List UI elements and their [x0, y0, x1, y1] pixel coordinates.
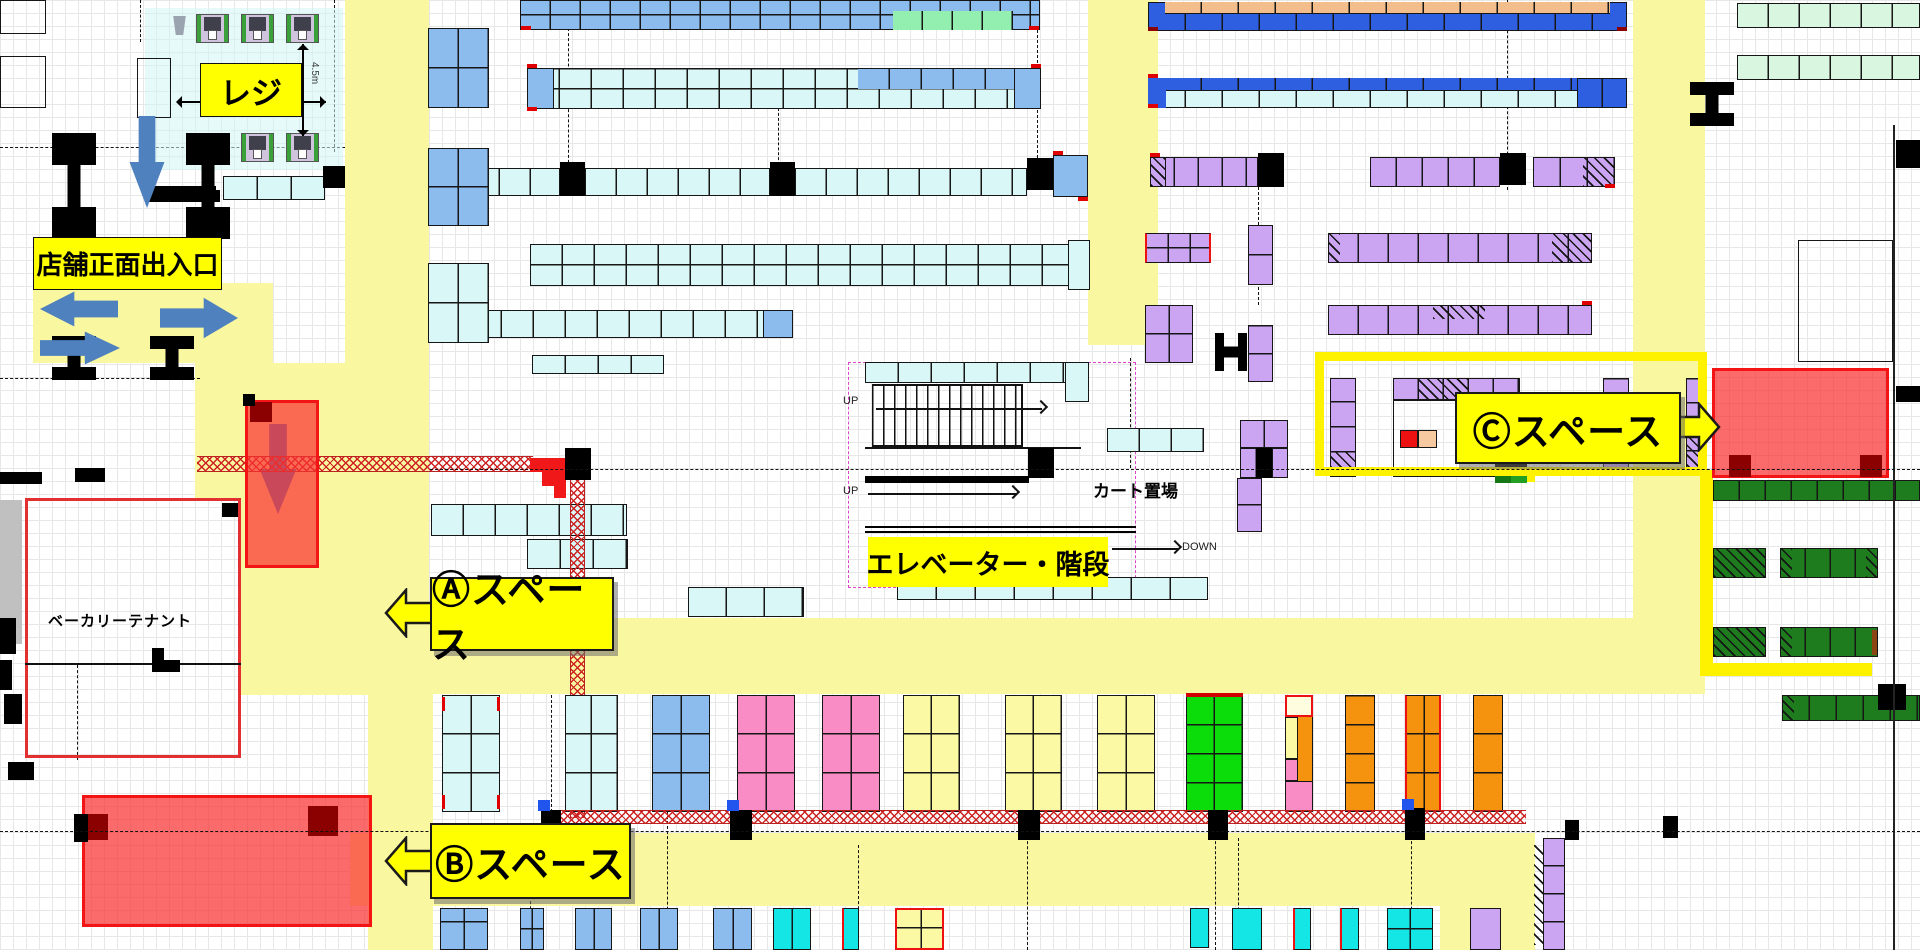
pillar	[1018, 810, 1040, 840]
bottom-block-cyan	[1340, 908, 1359, 950]
pillar	[1565, 820, 1579, 840]
gondola-yellow-3	[1097, 695, 1155, 812]
bottom-block-blue	[520, 908, 544, 950]
pillar	[1500, 153, 1526, 185]
walkway-mid-top	[1088, 0, 1158, 345]
stair-arrow-line	[876, 408, 1042, 410]
shelf-row-5b	[532, 355, 664, 374]
chain-fence-h-long	[558, 810, 1526, 824]
cspace-pillar	[1860, 455, 1882, 477]
shelf-row-3c	[795, 168, 1027, 196]
bottom-block-blue	[640, 908, 678, 950]
pillar	[1878, 684, 1906, 710]
space-c-text: Ⓒスペース	[1473, 401, 1663, 456]
register-icon	[241, 133, 274, 162]
room-outline-1	[0, 0, 46, 34]
yellow-line-horizontal	[1700, 663, 1872, 676]
shelf-purple-vert	[1237, 478, 1262, 532]
gondola-orange-3	[1473, 695, 1503, 812]
pillar	[1028, 448, 1054, 478]
cart-label: カート置場	[1093, 477, 1178, 502]
bottom-block-cyan	[1190, 908, 1209, 948]
hatch-cell	[1780, 627, 1792, 657]
purple-strip-hatch	[1534, 845, 1543, 945]
wall-mark	[0, 618, 16, 654]
down-text: DOWN	[1182, 541, 1217, 553]
dim-arrowhead	[297, 38, 309, 50]
escalator-line	[865, 526, 1136, 528]
pillar-foot	[0, 472, 42, 484]
shelf-row-3b	[585, 168, 770, 196]
pillar-ibeam	[186, 133, 230, 239]
shelf-row-5	[437, 310, 793, 338]
pillar-foot	[75, 468, 105, 482]
red-tick	[1031, 64, 1041, 68]
pillar	[1663, 816, 1678, 838]
room-outline-3	[0, 56, 46, 108]
space-a-text: Ⓐスペース	[432, 559, 612, 669]
shelf-row-2-cap	[1014, 68, 1041, 109]
aspace-red-area	[245, 400, 319, 568]
dimension-text: 4.5m	[309, 62, 320, 84]
entrance-label-text: 店舗正面出入口	[36, 245, 218, 282]
red-steps	[542, 472, 566, 486]
room-outline-right	[1798, 240, 1893, 362]
red-tick	[1150, 153, 1160, 157]
hatch-cell	[1150, 157, 1166, 187]
shelf-row-1-green	[893, 11, 1013, 30]
callout-arrow-left-icon	[384, 836, 432, 886]
gondola-yellow-2	[1005, 695, 1062, 812]
hatch-cell	[1583, 157, 1615, 187]
brown-tick	[1872, 630, 1877, 655]
red-tick	[1078, 197, 1088, 201]
hatch-cell	[1552, 233, 1592, 263]
red-tick	[1605, 184, 1615, 188]
wall-mark	[1896, 386, 1920, 402]
shelf-purple-r1a	[1150, 157, 1258, 187]
gondola-blue	[652, 695, 710, 812]
wall-mark	[8, 762, 34, 780]
pillar	[560, 162, 585, 196]
bakery-label: ベーカリーテナント	[48, 610, 192, 631]
dash-v-corner	[140, 0, 141, 42]
shelf-green-row	[1713, 480, 1920, 501]
red-tick	[527, 107, 537, 111]
wall-mark	[0, 660, 12, 690]
shelf-row-2-cap	[527, 68, 554, 109]
dash-h-mid	[430, 469, 1920, 470]
yellow-line-vertical	[1700, 470, 1713, 675]
shelf-mint-2	[1737, 55, 1920, 80]
gondola-pink-1	[737, 695, 795, 812]
gondola-orange-2	[1405, 695, 1441, 812]
shelf-cart-row	[1107, 428, 1204, 452]
down-arrow-line	[1112, 548, 1178, 550]
red-tick	[1053, 151, 1063, 155]
space-b-callout: Ⓑスペース	[430, 823, 631, 899]
shelf-stairs-top-end	[1065, 362, 1089, 402]
red-tick	[442, 795, 445, 809]
hatch-cell	[1782, 695, 1794, 721]
pillar	[565, 448, 591, 480]
bottom-block-cyan	[1293, 908, 1311, 950]
dim-arrowhead	[297, 130, 309, 142]
bottom-block-cyan	[773, 908, 811, 950]
bottom-block-cyan	[1232, 908, 1262, 950]
shelf-row-4	[530, 244, 1070, 286]
walkway-connector	[368, 693, 433, 950]
space-c-callout: Ⓒスペース	[1455, 392, 1681, 464]
gondola-cyan-2	[565, 695, 618, 812]
escalator-arrow-line	[868, 493, 1016, 495]
corner-mark	[222, 503, 238, 517]
bspace-mark	[74, 814, 88, 842]
pillar	[1027, 158, 1053, 190]
shelf-mint-1	[1737, 3, 1920, 28]
room-outline-2	[137, 58, 171, 118]
red-tick	[497, 795, 500, 809]
bakery-divider	[25, 663, 241, 665]
shelf-row-2-blue	[858, 69, 1014, 89]
pillar	[323, 166, 345, 188]
dash-v-14	[551, 695, 552, 812]
gondola-pink-2	[822, 695, 880, 812]
escalator-bar	[865, 476, 1029, 483]
shelf-row-4-cap	[1068, 240, 1090, 290]
shelf-green	[1780, 627, 1878, 657]
red-tick	[1148, 74, 1158, 78]
red-tick	[497, 697, 500, 711]
bottom-block-blue	[713, 908, 752, 950]
hatch-cell	[1433, 305, 1485, 319]
black-cell	[1256, 448, 1272, 478]
bottom-block-yellow	[895, 908, 944, 950]
shelf-purple-r1b	[1370, 157, 1500, 187]
block-cyan-3	[428, 263, 489, 343]
dark-red-tick	[1617, 27, 1627, 31]
shelf-green-hatch	[1713, 548, 1766, 578]
bottom-block-purple	[1470, 908, 1501, 950]
aspace-mark	[243, 394, 255, 406]
shelf-register-row	[223, 176, 325, 200]
wall-mark	[4, 694, 22, 724]
shelf-purple-2x2	[1145, 305, 1193, 363]
space-a-callout: Ⓐスペース	[430, 577, 614, 651]
dash-v-2	[778, 108, 779, 170]
block-blue-2	[428, 148, 489, 226]
gondola-mixed-pink	[1285, 759, 1298, 781]
register-label: レジ	[200, 63, 302, 117]
shelf-a3	[688, 587, 804, 617]
shelf-purple-vert	[1248, 225, 1273, 285]
elevator-label-text: エレベーター・階段	[867, 543, 1110, 582]
corner-mark	[152, 660, 180, 672]
bottom-block-blue	[440, 908, 488, 950]
stair-treads	[872, 384, 1023, 447]
pillar	[1405, 808, 1425, 840]
gondola-mixed-pink2	[1285, 781, 1313, 812]
gondola-yellow-1	[903, 695, 960, 812]
entrance-label: 店舗正面出入口	[33, 237, 222, 290]
space-b-text: Ⓑスペース	[435, 834, 625, 889]
gondola-mixed-yellow	[1285, 717, 1298, 759]
red-tick	[442, 697, 445, 711]
shelf-top-right-2-capR	[1577, 78, 1627, 108]
pillar-h	[1215, 333, 1247, 371]
pillar-ibeam	[52, 133, 96, 239]
pillar-ibeam	[1690, 82, 1734, 126]
bottom-block-cyan	[1387, 908, 1433, 950]
pillar	[1208, 810, 1228, 840]
pillar-ibeam	[150, 336, 194, 380]
wall-line-right	[1893, 125, 1895, 950]
shelf-purple-vert	[1248, 325, 1273, 382]
red-tick	[1148, 104, 1158, 108]
shelf-purple-low	[1240, 420, 1288, 448]
shelf-top-right-1-orange	[1165, 2, 1610, 14]
shelf-a1	[431, 504, 627, 536]
wall-mark	[1896, 140, 1920, 168]
gondola-cyan-1	[442, 695, 500, 812]
escalator-line	[865, 531, 1136, 533]
block-blue-1	[428, 28, 489, 108]
shelf-green	[1780, 548, 1878, 578]
register-label-text: レジ	[220, 68, 282, 113]
down-arrow-head	[1168, 540, 1182, 554]
shelf-purple-small	[1145, 233, 1211, 263]
elevator-label: エレベーター・階段	[868, 537, 1108, 587]
hatch-cell	[1780, 548, 1792, 578]
bottom-block-cyan	[842, 908, 859, 950]
shelf-green-hatch	[1713, 627, 1766, 657]
register-icon	[196, 14, 229, 43]
dash-h-bottom	[0, 831, 1920, 832]
hatch-cell	[1328, 233, 1340, 263]
gondola-green	[1186, 695, 1243, 812]
dim-line-v	[302, 44, 304, 136]
red-tick	[527, 64, 537, 68]
purple-strip	[1543, 838, 1565, 950]
dim-arrowhead	[170, 96, 182, 108]
dim-arrowhead	[320, 96, 332, 108]
blue-marker	[727, 800, 739, 811]
blue-marker	[538, 800, 550, 811]
gondola-mixed-cream	[1285, 695, 1313, 717]
red-tick	[521, 26, 531, 30]
pillar	[770, 162, 795, 196]
shelf-stairs-top	[865, 362, 1067, 383]
blue-marker	[1402, 799, 1414, 810]
shelf-top-right-2-blue	[1165, 78, 1577, 91]
shelf-row-5-blue	[763, 310, 793, 338]
red-steps	[554, 486, 566, 498]
hatch-cell	[1866, 548, 1878, 578]
gondola-orange-1	[1345, 695, 1375, 812]
up-text-2: UP	[843, 485, 858, 497]
bottom-block-blue	[575, 908, 612, 950]
up-text-1: UP	[843, 395, 858, 407]
cspace-pillar	[1729, 455, 1751, 477]
dark-red-tick	[1148, 27, 1158, 31]
register-icon	[241, 14, 274, 43]
red-tick	[1029, 26, 1039, 30]
red-top-edge	[1186, 693, 1243, 697]
store-floor-plan: レジ 4.5m 店舗正面出入口 ベーカリーテナント エレベーター・階段 カート置…	[0, 0, 1920, 950]
bspace-pillar	[88, 814, 108, 840]
pillar	[1258, 153, 1284, 187]
pillar	[730, 810, 752, 840]
shelf-row-3-cap	[1053, 155, 1088, 197]
red-tick	[1582, 301, 1592, 305]
callout-arrow-left-icon	[384, 588, 432, 638]
